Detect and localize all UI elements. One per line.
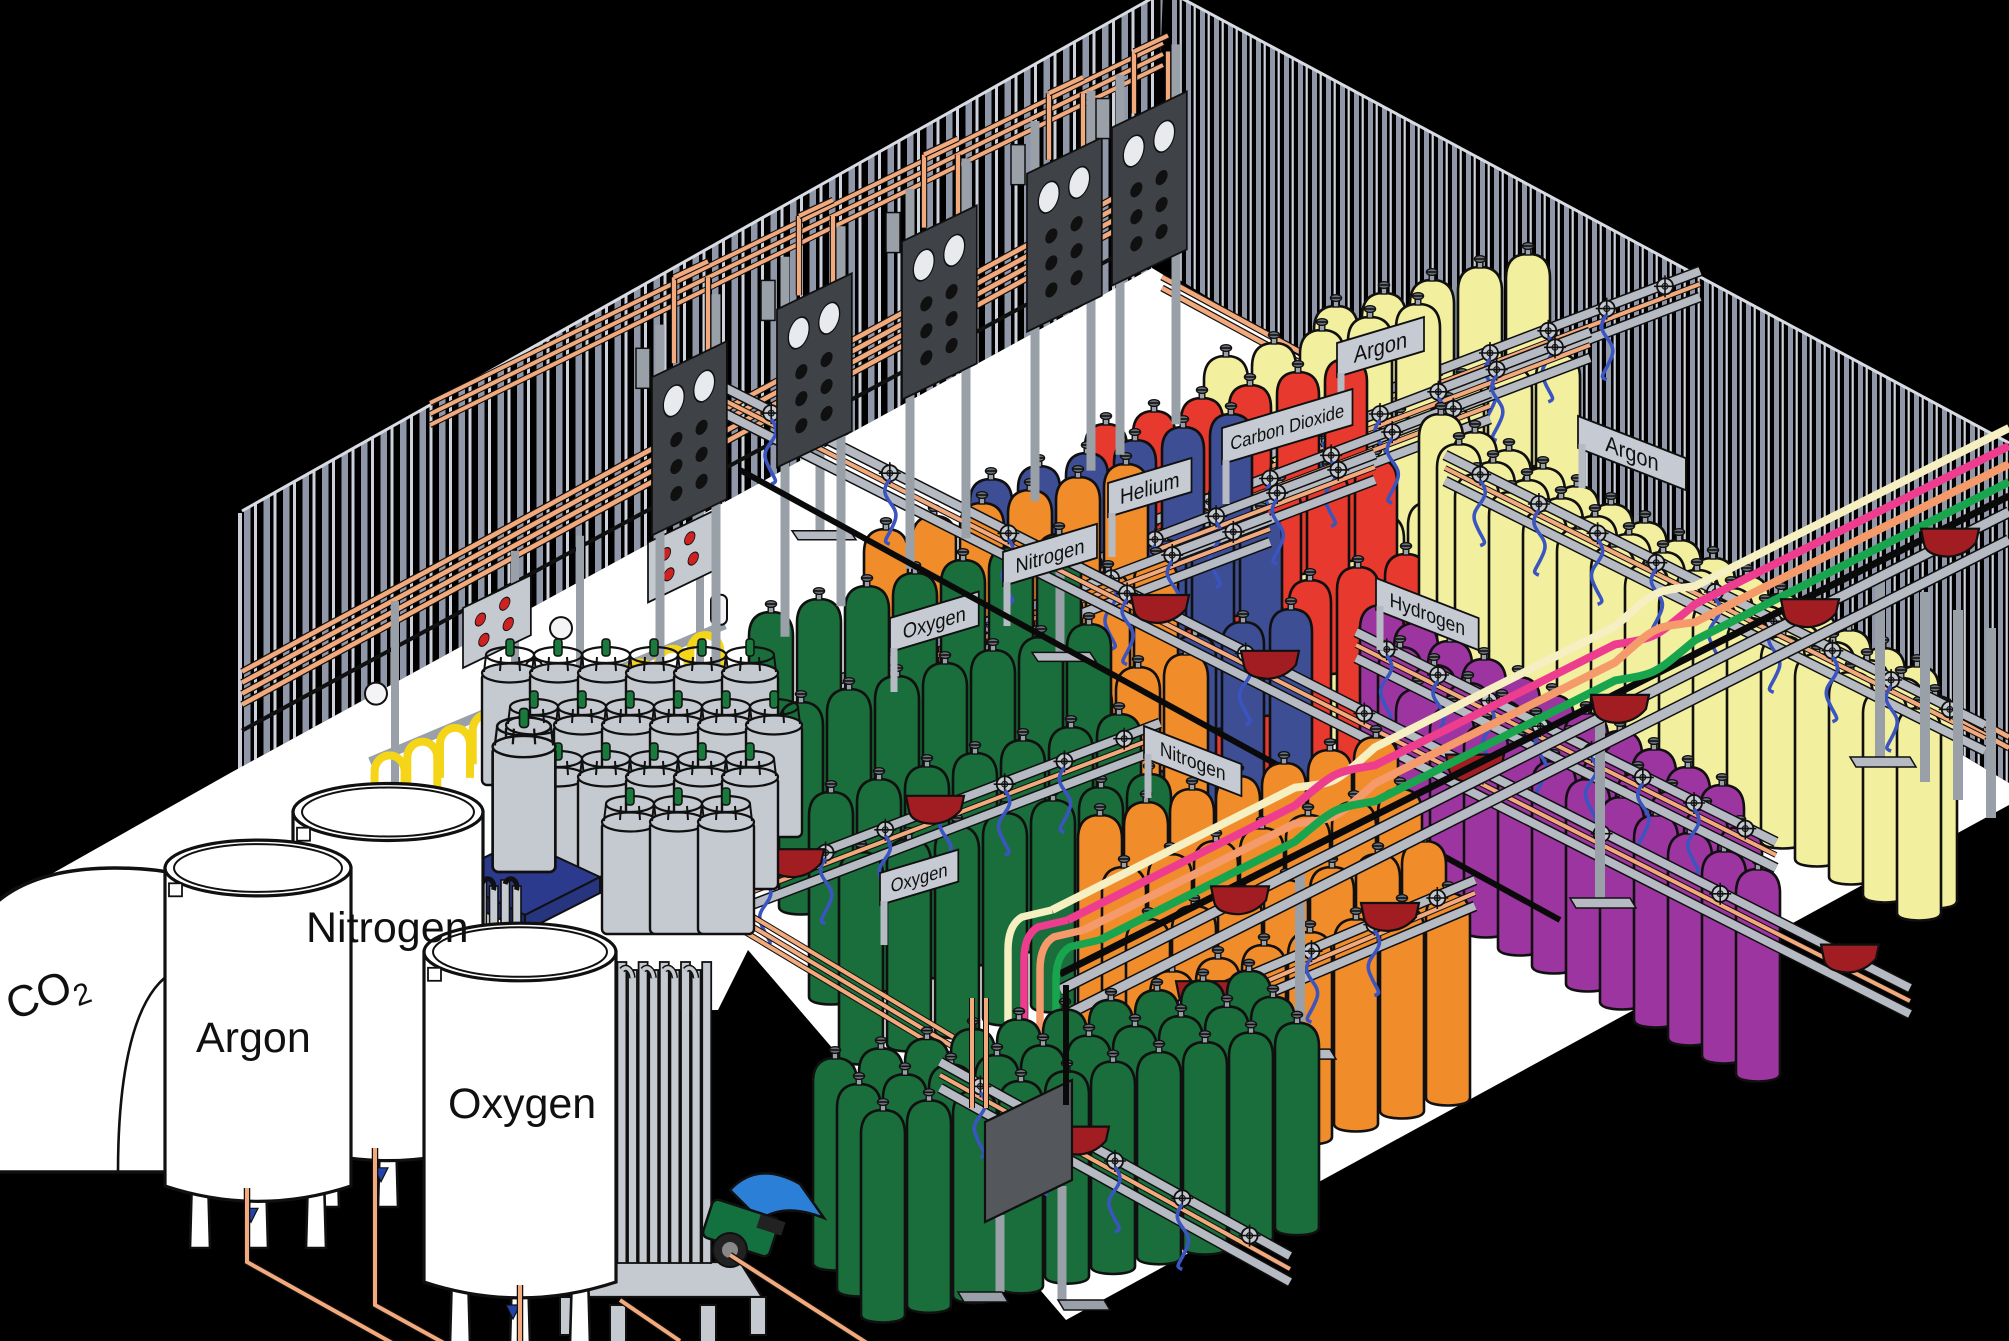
svg-text:Oxygen: Oxygen xyxy=(448,1080,596,1128)
svg-text:Nitrogen: Nitrogen xyxy=(306,904,469,952)
svg-text:Argon: Argon xyxy=(196,1014,311,1062)
